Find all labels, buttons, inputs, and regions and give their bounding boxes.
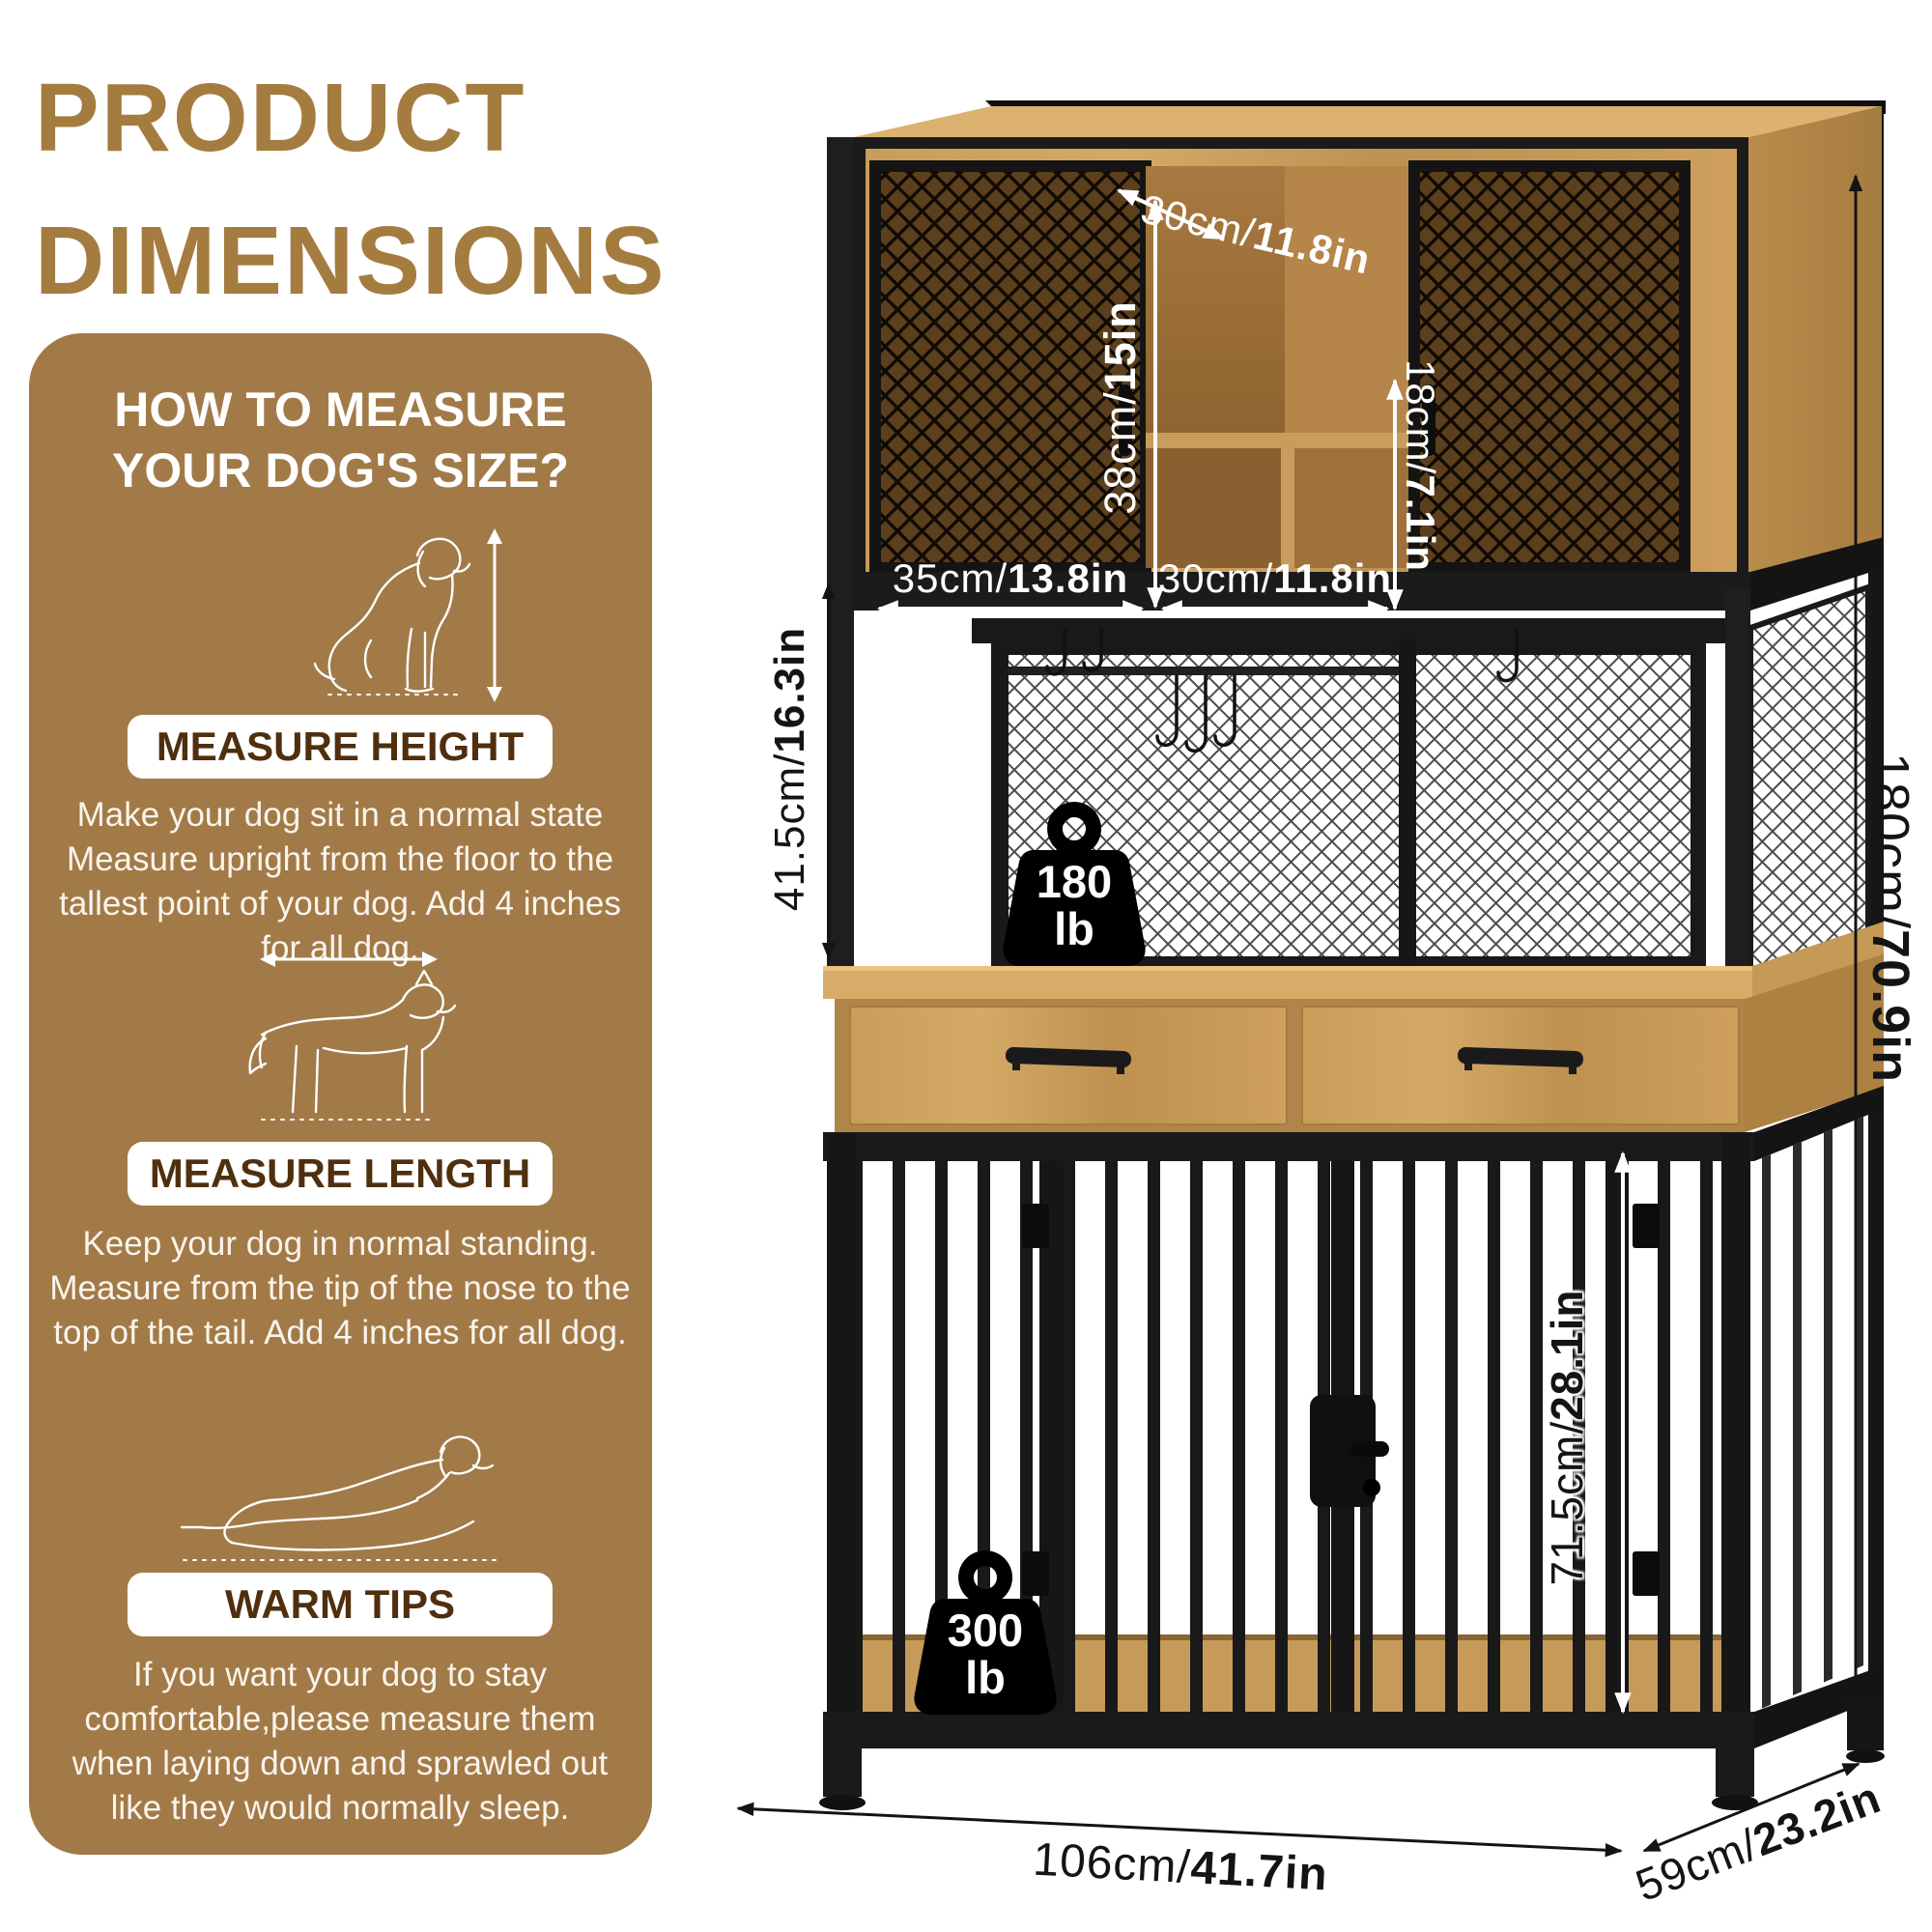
- crate-weight-unit: lb: [927, 1654, 1043, 1701]
- dim-left-door-width: 35cm/13.8in: [893, 555, 1128, 602]
- front-left-post: [827, 137, 854, 972]
- dim-left-door-height: 38cm/15in: [1095, 300, 1146, 515]
- hutch-weight-capacity-text: 180 lb: [1016, 858, 1132, 952]
- dim-crate-height: 71.5cm/28.1in: [1541, 1289, 1593, 1585]
- front-right-post: [1725, 589, 1750, 976]
- crate-weight-capacity-text: 300 lb: [927, 1606, 1043, 1701]
- dim-center-cubby-width: 30cm/11.8in: [1158, 555, 1392, 602]
- hutch-cabinet: [827, 100, 1886, 611]
- product-dimensions-infographic: PRODUCT DIMENSIONS HOW TO MEASURE YOUR D…: [0, 0, 1932, 1932]
- crate-weight-value: 300: [927, 1606, 1043, 1654]
- hutch-weight-unit: lb: [1016, 905, 1132, 952]
- dim-hutch-opening-height: 41.5cm/16.3in: [766, 627, 814, 911]
- dim-right-cubby-height: 18cm/7.1in: [1397, 359, 1443, 572]
- dim-total-height: 180cm/70.9in: [1861, 753, 1920, 1083]
- hutch-weight-value: 180: [1016, 858, 1132, 905]
